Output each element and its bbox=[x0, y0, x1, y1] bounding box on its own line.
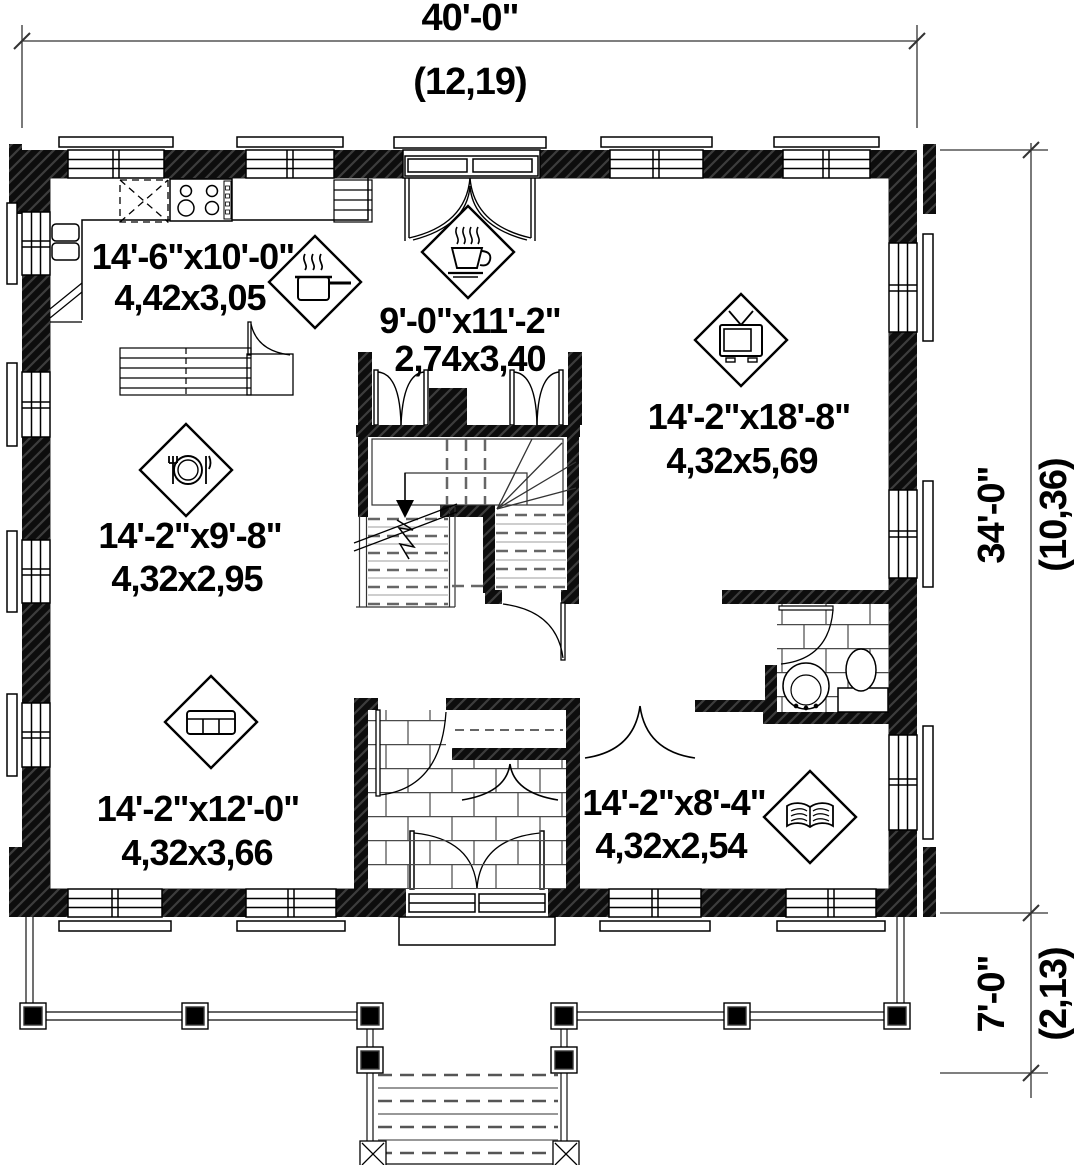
window-left-2 bbox=[7, 363, 50, 446]
foyer bbox=[354, 698, 580, 890]
stair-direction-arrow bbox=[396, 473, 414, 559]
overall-width-metric: (12,19) bbox=[413, 61, 526, 103]
stove-icon bbox=[170, 179, 232, 221]
dining-cutlery-icon bbox=[140, 424, 232, 516]
study-size-metric: 4,32x2,54 bbox=[595, 825, 747, 866]
toilet-icon bbox=[783, 663, 829, 710]
window-bottom-4 bbox=[777, 889, 885, 931]
bay-window bbox=[394, 137, 546, 178]
room-label-breakfast-nook: 9'-0"x11'-2" 2,74x3,40 bbox=[379, 300, 560, 379]
window-left-4 bbox=[7, 694, 50, 776]
kitchen-size-imperial: 14'-6"x10'-0" bbox=[92, 236, 294, 277]
window-bottom-3 bbox=[600, 889, 710, 931]
room-label-dining-room: 14'-2"x9'-8" 4,32x2,95 bbox=[98, 515, 281, 599]
room-label-family-room: 14'-2"x12'-0" 4,32x3,66 bbox=[97, 788, 299, 873]
dining-size-imperial: 14'-2"x9'-8" bbox=[98, 515, 281, 556]
room-label-study: 14'-2"x8'-4" 4,32x2,54 bbox=[582, 782, 765, 866]
window-bottom-2 bbox=[237, 889, 345, 931]
tv-icon bbox=[695, 294, 787, 386]
window-top-3 bbox=[601, 137, 712, 178]
kitchen-peninsula bbox=[120, 348, 251, 395]
study-cased-opening bbox=[585, 706, 695, 758]
window-bottom-1 bbox=[59, 889, 171, 931]
porch bbox=[20, 917, 910, 1165]
porch-posts bbox=[20, 1003, 910, 1073]
room-label-kitchen: 14'-6"x10'-0" 4,42x3,05 bbox=[92, 236, 294, 318]
study-size-imperial: 14'-2"x8'-4" bbox=[582, 782, 765, 823]
living-size-metric: 4,32x5,69 bbox=[666, 440, 817, 481]
stair-treads bbox=[368, 439, 566, 604]
window-top-4 bbox=[774, 137, 879, 178]
porch-depth-metric: (2,13) bbox=[1033, 947, 1075, 1040]
sofa-icon bbox=[165, 676, 257, 768]
window-right-1 bbox=[889, 234, 933, 341]
understair-door bbox=[503, 603, 565, 660]
stair-winders bbox=[497, 439, 576, 509]
porch-steps bbox=[360, 1075, 579, 1164]
living-size-imperial: 14'-2"x18'-8" bbox=[648, 396, 850, 437]
dining-size-metric: 4,32x2,95 bbox=[111, 558, 263, 599]
family-size-metric: 4,32x3,66 bbox=[121, 832, 272, 873]
refrigerator bbox=[120, 180, 168, 222]
window-top-2 bbox=[237, 137, 343, 178]
floor-plan-page: 40'-0" (12,19) 34'-0" (10,36) 7'-0" (2,1… bbox=[0, 0, 1080, 1165]
kitchen-size-metric: 4,42x3,05 bbox=[114, 277, 266, 318]
pantry-shelves bbox=[334, 180, 372, 222]
family-size-imperial: 14'-2"x12'-0" bbox=[97, 788, 299, 829]
window-right-2 bbox=[889, 481, 933, 587]
open-book-icon bbox=[764, 771, 856, 863]
room-label-living-room: 14'-2"x18'-8" 4,32x5,69 bbox=[648, 396, 850, 481]
window-right-3 bbox=[889, 726, 933, 839]
kitchen-cabinet-door bbox=[247, 322, 293, 395]
porch-depth-imperial: 7'-0" bbox=[971, 956, 1013, 1033]
kitchen-sink bbox=[52, 224, 79, 260]
window-top-1 bbox=[59, 137, 173, 178]
main-depth-metric: (10,36) bbox=[1033, 458, 1075, 571]
nook-size-imperial: 9'-0"x11'-2" bbox=[379, 300, 560, 341]
window-left-1 bbox=[7, 203, 50, 284]
coffee-cup-icon bbox=[422, 206, 514, 298]
window-left-3 bbox=[7, 531, 50, 612]
overall-width-imperial: 40'-0" bbox=[421, 0, 518, 39]
bathroom bbox=[763, 590, 889, 724]
main-depth-imperial: 34'-0" bbox=[971, 466, 1013, 563]
floor-plan-drawing: 40'-0" (12,19) 34'-0" (10,36) 7'-0" (2,1… bbox=[0, 0, 1080, 1165]
nook-size-metric: 2,74x3,40 bbox=[394, 338, 545, 379]
